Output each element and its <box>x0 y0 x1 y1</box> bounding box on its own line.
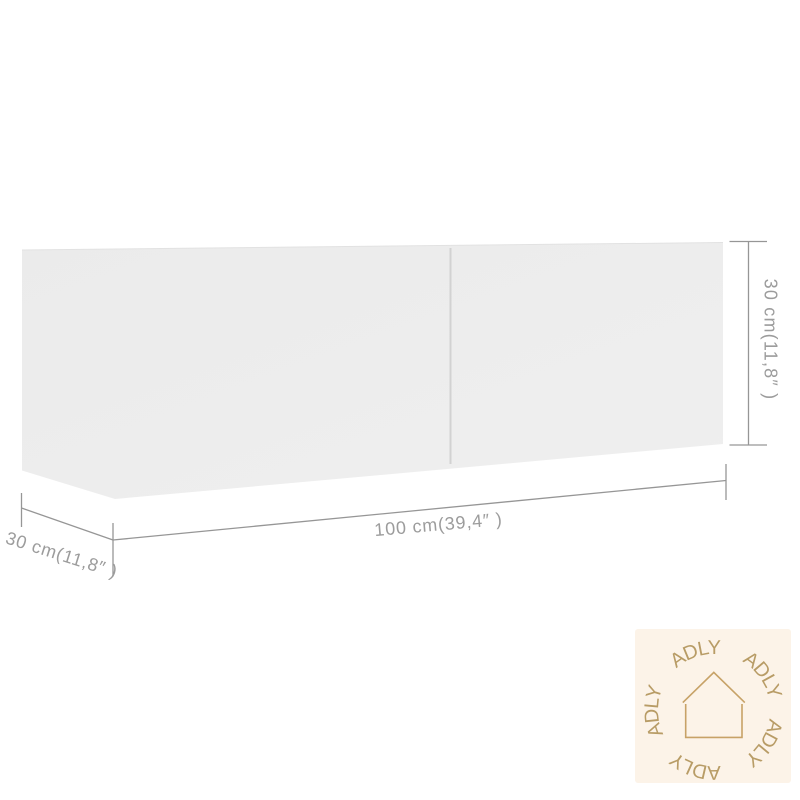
svg-text:30 cm(11,8″ ): 30 cm(11,8″ ) <box>761 279 781 401</box>
svg-text:100 cm(39,4″ ): 100 cm(39,4″ ) <box>374 509 504 540</box>
